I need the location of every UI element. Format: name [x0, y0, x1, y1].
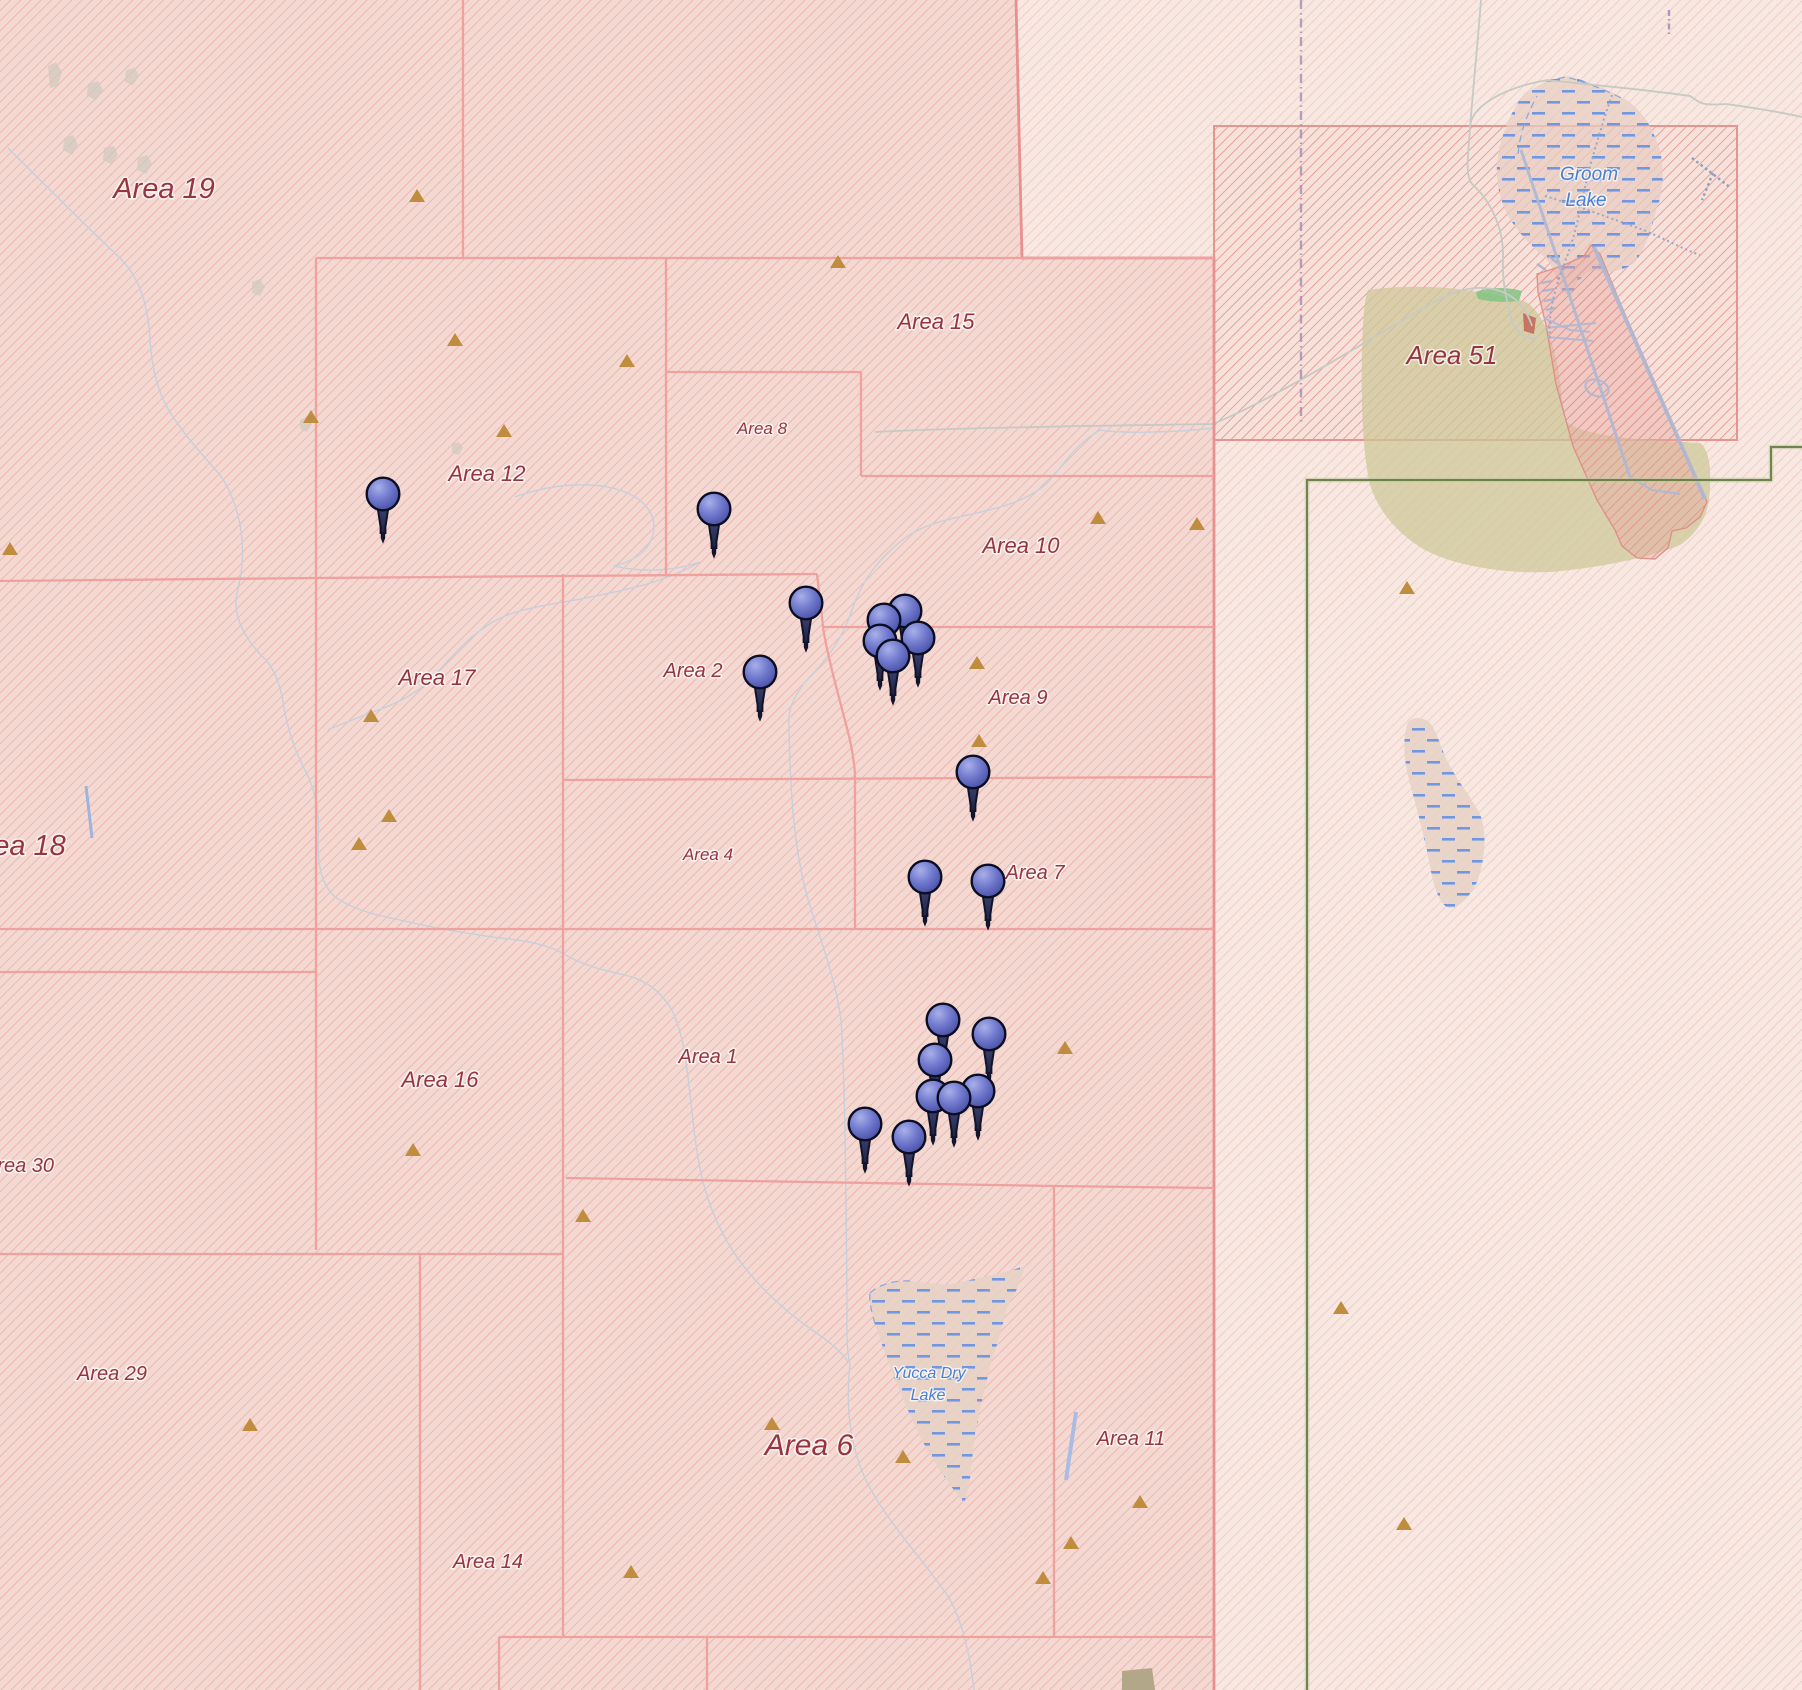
- svg-text:Area 18: Area 18: [0, 830, 66, 862]
- svg-text:Area 19: Area 19: [111, 173, 215, 205]
- svg-text:Lake: Lake: [911, 1387, 946, 1404]
- svg-text:Area 2: Area 2: [663, 660, 723, 682]
- svg-text:Area 1: Area 1: [678, 1046, 738, 1068]
- svg-text:Area 11: Area 11: [1096, 1428, 1166, 1450]
- svg-text:Area 30: Area 30: [0, 1155, 54, 1177]
- svg-text:Area 14: Area 14: [452, 1551, 523, 1573]
- svg-text:Area 17: Area 17: [396, 665, 476, 690]
- svg-text:Area 29: Area 29: [76, 1363, 147, 1385]
- svg-text:Area 15: Area 15: [895, 309, 975, 334]
- svg-text:Groom: Groom: [1560, 164, 1618, 185]
- svg-text:Yucca Dry: Yucca Dry: [892, 1365, 966, 1382]
- svg-text:Area 7: Area 7: [1005, 862, 1066, 884]
- svg-text:Area 6: Area 6: [763, 1429, 854, 1462]
- svg-text:Area 12: Area 12: [446, 461, 525, 486]
- svg-text:Lake: Lake: [1565, 190, 1606, 211]
- svg-text:Area 16: Area 16: [399, 1067, 479, 1092]
- svg-text:Area 10: Area 10: [980, 533, 1060, 558]
- svg-text:Area 8: Area 8: [736, 419, 788, 438]
- svg-text:Area 51: Area 51: [1404, 340, 1497, 370]
- svg-text:Area 9: Area 9: [988, 687, 1048, 709]
- svg-text:Area 4: Area 4: [682, 845, 733, 864]
